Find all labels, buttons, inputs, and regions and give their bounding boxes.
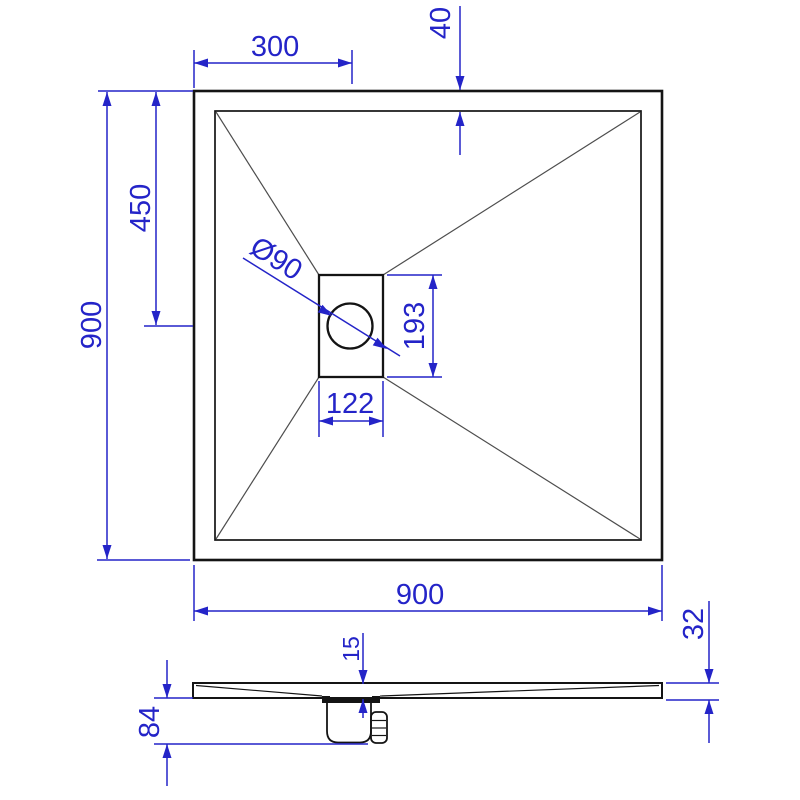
dim-84: 84 — [134, 660, 368, 786]
dim-300-label: 300 — [251, 31, 299, 63]
dim-122: 122 — [319, 381, 383, 437]
drain-flange-tab-right — [372, 696, 380, 703]
drain-flange — [322, 699, 380, 704]
dim-diameter-90: Ø90 — [243, 231, 400, 356]
dim-15-label: 15 — [338, 636, 364, 662]
dim-40: 40 — [425, 6, 460, 155]
side-dimensions: 15 32 84 — [134, 601, 719, 786]
dim-40-label: 40 — [425, 7, 457, 39]
drain-flange-tab-left — [322, 696, 330, 703]
slope-line-bottom-left — [216, 377, 319, 539]
dim-32-label: 32 — [678, 608, 710, 640]
dim-122-label: 122 — [326, 388, 374, 420]
slope-line-bottom-right — [383, 377, 640, 539]
tray-profile — [193, 683, 662, 698]
dim-300: 300 — [194, 31, 352, 88]
dim-193-label: 193 — [399, 302, 431, 350]
slope-line-top-right — [383, 112, 640, 275]
dim-900-bottom-label: 900 — [396, 579, 444, 611]
technical-drawing: 300 40 450 900 Ø90 — [0, 0, 800, 800]
side-view — [193, 683, 662, 743]
dim-900-bottom: 900 — [194, 565, 662, 621]
drain-trap-body — [327, 703, 371, 743]
dim-32: 32 — [666, 601, 719, 743]
dim-450: 450 — [125, 92, 193, 326]
dim-15: 15 — [338, 633, 364, 718]
dim-900-left-label: 900 — [76, 301, 108, 349]
profile-dish-right — [380, 686, 659, 697]
dim-450-label: 450 — [125, 184, 157, 232]
dim-84-label: 84 — [134, 706, 166, 738]
drain-hole-circle — [328, 304, 373, 349]
profile-dish-left — [196, 686, 322, 697]
dim-193: 193 — [387, 275, 442, 377]
drawing-canvas: 300 40 450 900 Ø90 — [0, 0, 800, 800]
